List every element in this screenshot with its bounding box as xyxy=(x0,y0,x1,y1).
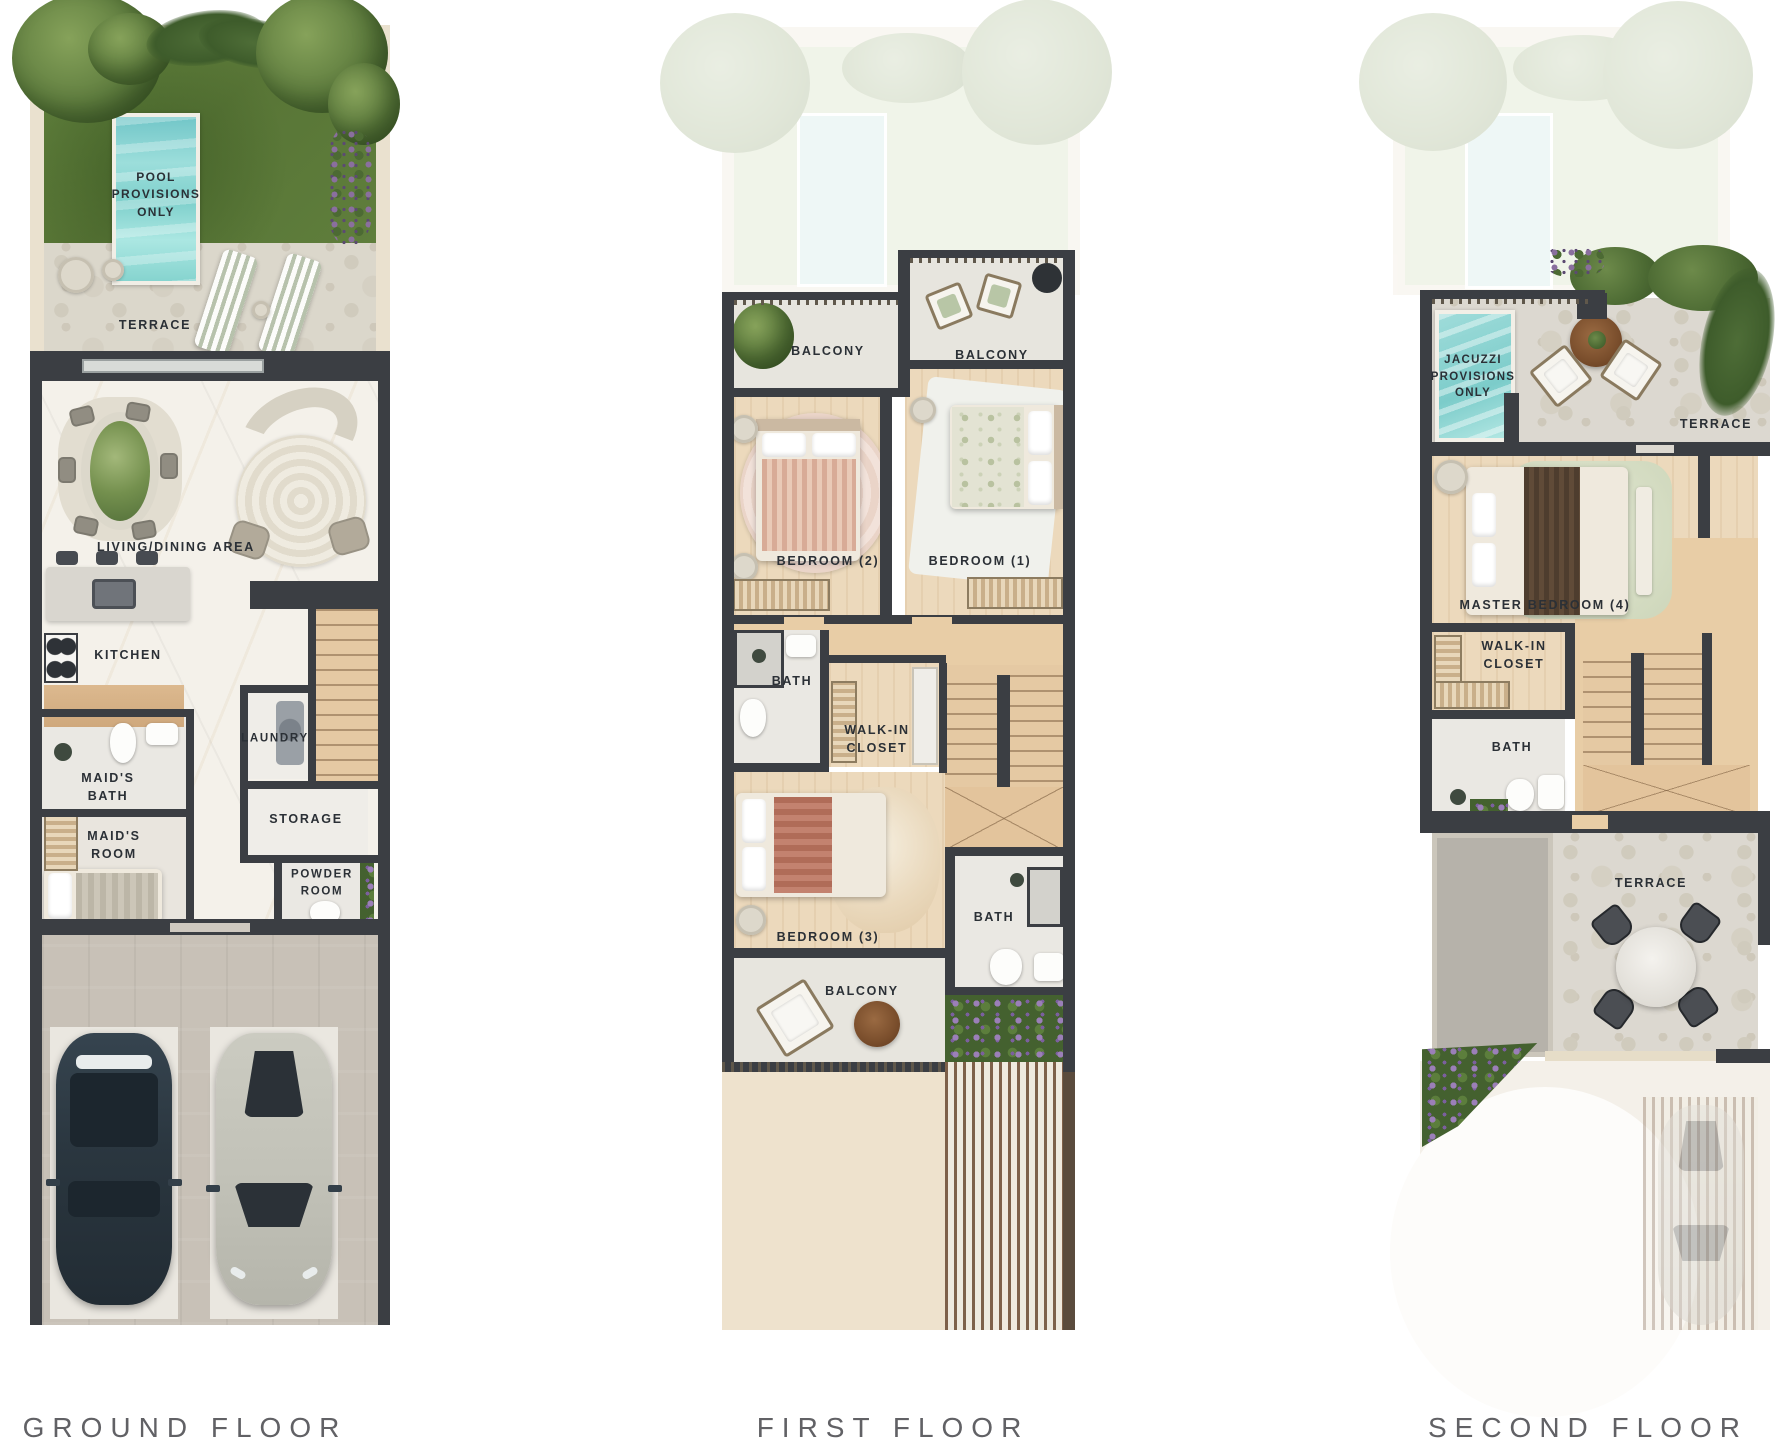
nightstand xyxy=(730,553,758,581)
bedroom-1-blanket xyxy=(952,407,1024,507)
dining-table xyxy=(90,421,150,521)
bedroom-1-wardrobe xyxy=(967,577,1063,609)
wall xyxy=(1420,442,1770,456)
maids-bath-label: MAID'S BATH xyxy=(68,769,148,805)
shower xyxy=(1027,867,1063,927)
table-plant xyxy=(1588,331,1606,349)
bath-sink xyxy=(146,723,178,745)
first-floor-title: FIRST FLOOR xyxy=(757,1412,1030,1441)
pergola xyxy=(945,1062,1063,1330)
kitchen-counter xyxy=(44,685,184,727)
door-gap xyxy=(912,617,952,624)
master-blanket xyxy=(1524,467,1580,615)
nightstand xyxy=(736,905,766,935)
wall xyxy=(722,948,945,958)
rear-patio xyxy=(722,1072,945,1330)
living-dining-label: LIVING/DINING AREA xyxy=(96,538,256,556)
toilet xyxy=(1506,779,1534,811)
wall xyxy=(939,663,947,773)
wall-pillar xyxy=(1577,293,1607,319)
wall xyxy=(1565,623,1575,719)
pillow xyxy=(742,847,766,891)
wall xyxy=(1420,710,1575,719)
wall xyxy=(378,351,390,1325)
car-cabin-glass xyxy=(70,1073,158,1147)
storage-label: STORAGE xyxy=(269,810,343,828)
stair-landing-wall xyxy=(250,581,378,609)
car-sports xyxy=(216,1033,332,1305)
powder-room-label: POWDER ROOM xyxy=(276,866,368,899)
terrace-railing xyxy=(1432,299,1592,304)
bath-sink xyxy=(786,635,816,657)
wall xyxy=(945,987,1075,995)
stove xyxy=(44,633,78,683)
wall xyxy=(945,847,955,995)
garage-door xyxy=(170,923,250,932)
balcony-railing xyxy=(734,300,898,305)
ghost-car xyxy=(1658,1105,1744,1325)
wall xyxy=(722,763,829,772)
toilet xyxy=(740,699,766,737)
terrace-side-table xyxy=(102,259,124,281)
wall xyxy=(1702,633,1712,765)
first-floor-plan: BALCONY BALCONY BEDROOM (2) BEDROOM (1) xyxy=(722,5,1075,1330)
kitchen-sink xyxy=(92,579,136,609)
wall xyxy=(186,709,194,927)
maids-room-label: MAID'S ROOM xyxy=(74,827,154,863)
door-gap xyxy=(1572,815,1608,829)
kitchen-stool xyxy=(56,551,78,565)
pergola-edge xyxy=(1063,1062,1075,1330)
laundry-label: LAUNDRY xyxy=(241,731,309,748)
wall xyxy=(308,609,316,787)
bedroom-3-blanket xyxy=(774,797,832,893)
bedroom-1-label: BEDROOM (1) xyxy=(929,552,1032,570)
floor-plans-sheet: POOL PROVISIONS ONLY TERRACE LIVING/DINI… xyxy=(0,0,1783,1441)
nightstand xyxy=(1434,460,1468,494)
toilet xyxy=(110,723,136,763)
pillow xyxy=(1472,543,1496,587)
wall xyxy=(42,809,192,817)
pillow xyxy=(762,433,806,457)
flowering-vine xyxy=(326,127,374,245)
stair-flight xyxy=(1010,675,1063,787)
wall xyxy=(880,397,892,617)
terrace-decking xyxy=(1432,833,1553,1057)
pool-label: POOL PROVISIONS ONLY xyxy=(104,169,208,221)
car-windshield xyxy=(68,1181,160,1217)
dining-chair xyxy=(125,401,152,423)
balcony-left-label: BALCONY xyxy=(791,342,865,360)
car-mirror xyxy=(46,1179,60,1186)
wall xyxy=(898,250,910,397)
pool-side-table xyxy=(252,301,270,319)
wall xyxy=(905,250,1075,258)
wall xyxy=(1420,623,1575,632)
bedroom-2-wardrobe xyxy=(733,579,830,611)
maids-blanket xyxy=(76,873,158,919)
bath-2-label: BATH xyxy=(974,908,1015,926)
pillow xyxy=(1028,461,1052,505)
wall xyxy=(42,709,192,717)
pillow xyxy=(812,433,856,457)
wall xyxy=(1063,250,1075,1072)
closet-shelving xyxy=(1434,681,1510,709)
wall xyxy=(240,855,380,863)
wall xyxy=(945,847,1075,856)
wall xyxy=(820,655,946,663)
balcony-rear-label: BALCONY xyxy=(825,982,899,1000)
stair-spine-wall xyxy=(1631,653,1644,765)
kitchen-label: KITCHEN xyxy=(94,646,161,664)
terrace-side-table xyxy=(58,257,94,293)
pillow xyxy=(48,873,72,919)
balcony-round-table xyxy=(854,1001,900,1047)
car-rear-window xyxy=(76,1055,152,1069)
wall xyxy=(722,292,900,300)
walk-in-closet-label: WALK-IN CLOSET xyxy=(1464,637,1564,673)
balcony-table xyxy=(1032,263,1062,293)
flower-bed xyxy=(945,995,1063,1062)
toilet xyxy=(990,949,1022,985)
ground-floor-title: GROUND FLOOR xyxy=(23,1412,348,1441)
car-mirror xyxy=(206,1185,220,1192)
balcony-rear-railing xyxy=(722,1062,945,1072)
bath-label: BATH xyxy=(772,672,813,690)
wall xyxy=(1716,1049,1770,1063)
shower-head-icon xyxy=(54,743,72,761)
wall xyxy=(722,615,1075,624)
bedroom-3-label: BEDROOM (3) xyxy=(777,928,880,946)
wall xyxy=(240,685,310,693)
pillow xyxy=(742,799,766,843)
terrace-label: TERRACE xyxy=(119,316,191,334)
dining-chair xyxy=(160,453,178,479)
master-bedroom-label: MASTER BEDROOM (4) xyxy=(1460,596,1631,614)
stair-flight xyxy=(1583,661,1631,765)
wall xyxy=(1758,833,1770,945)
ground-floor-plan: POOL PROVISIONS ONLY TERRACE LIVING/DINI… xyxy=(30,5,390,1330)
bath-label: BATH xyxy=(1492,738,1533,756)
car-sedan xyxy=(56,1033,172,1305)
wall xyxy=(722,388,900,397)
wall xyxy=(240,781,248,861)
wall xyxy=(240,781,378,789)
maids-wardrobe xyxy=(44,811,78,871)
jacuzzi-label: JACUZZI PROVISIONS ONLY xyxy=(1428,352,1518,402)
bedroom-2-label: BEDROOM (2) xyxy=(777,552,880,570)
outdoor-dining-table xyxy=(1616,927,1696,1007)
sliding-door xyxy=(82,359,264,373)
nightstand xyxy=(730,415,758,443)
car-windshield xyxy=(234,1183,314,1227)
stair-winder xyxy=(1583,765,1750,816)
car-mirror xyxy=(328,1185,342,1192)
dining-chair xyxy=(58,457,76,483)
shower-head-icon xyxy=(1010,873,1024,887)
stair-spine-wall xyxy=(997,675,1010,787)
walk-in-closet-label: WALK-IN CLOSET xyxy=(827,721,927,757)
stair-flight xyxy=(1644,653,1702,765)
door-gap xyxy=(784,617,824,624)
bed-bench xyxy=(1636,487,1652,595)
balcony-plant xyxy=(732,303,794,369)
shower-head-icon xyxy=(1450,789,1466,805)
shower-head-icon xyxy=(752,649,766,663)
stair-winder xyxy=(945,787,1063,850)
headboard xyxy=(1054,405,1063,509)
bath-sink xyxy=(1034,953,1064,981)
balcony-right-label: BALCONY xyxy=(955,346,1029,364)
bath-vanity xyxy=(1538,775,1564,809)
car-engine-cover xyxy=(244,1051,304,1117)
terrace-rear-label: TERRACE xyxy=(1615,874,1687,892)
terrace-front-label: TERRACE xyxy=(1680,415,1752,433)
second-floor-title: SECOND FLOOR xyxy=(1428,1412,1748,1441)
wall xyxy=(722,292,734,1072)
car-mirror xyxy=(168,1179,182,1186)
balcony-railing xyxy=(910,258,1063,263)
nightstand xyxy=(910,397,936,423)
pillow xyxy=(1028,411,1052,455)
car-headlight xyxy=(301,1266,319,1281)
stair-flight xyxy=(945,683,997,787)
pillow xyxy=(1472,493,1496,537)
door-gap xyxy=(1636,445,1674,453)
flowering-planter xyxy=(1546,245,1604,277)
wall xyxy=(30,351,42,1325)
staircase xyxy=(316,609,378,787)
headboard xyxy=(756,419,860,431)
second-floor-plan: JACUZZI PROVISIONS ONLY TERRACE MASTER B… xyxy=(1420,5,1770,1330)
wall xyxy=(1698,456,1710,538)
bedroom-2-blanket xyxy=(762,459,856,551)
car-headlight xyxy=(229,1266,247,1281)
